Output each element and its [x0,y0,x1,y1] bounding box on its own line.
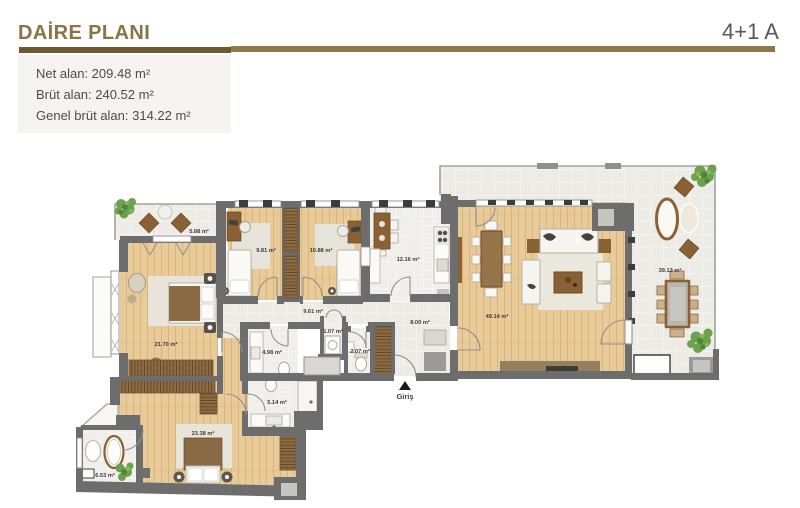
svg-text:39.13 m²: 39.13 m² [659,267,682,274]
svg-text:6.53 m²: 6.53 m² [95,472,115,479]
svg-text:8.00 m²: 8.00 m² [410,319,430,326]
svg-text:12.16 m²: 12.16 m² [397,256,420,263]
svg-text:2.07 m²: 2.07 m² [350,348,370,355]
svg-text:5.88 m²: 5.88 m² [189,228,209,235]
svg-text:4.98 m²: 4.98 m² [262,349,282,356]
svg-text:1.07 m²: 1.07 m² [323,328,343,335]
svg-text:10.88 m²: 10.88 m² [310,247,333,254]
svg-text:9.61 m²: 9.61 m² [303,308,323,315]
svg-text:5.14 m²: 5.14 m² [267,399,287,406]
svg-text:21.70 m²: 21.70 m² [155,341,178,348]
svg-text:9.81 m²: 9.81 m² [256,247,276,254]
svg-text:49.14 m²: 49.14 m² [486,313,509,320]
svg-text:Giriş: Giriş [396,392,413,401]
svg-text:23.38 m²: 23.38 m² [192,430,215,437]
